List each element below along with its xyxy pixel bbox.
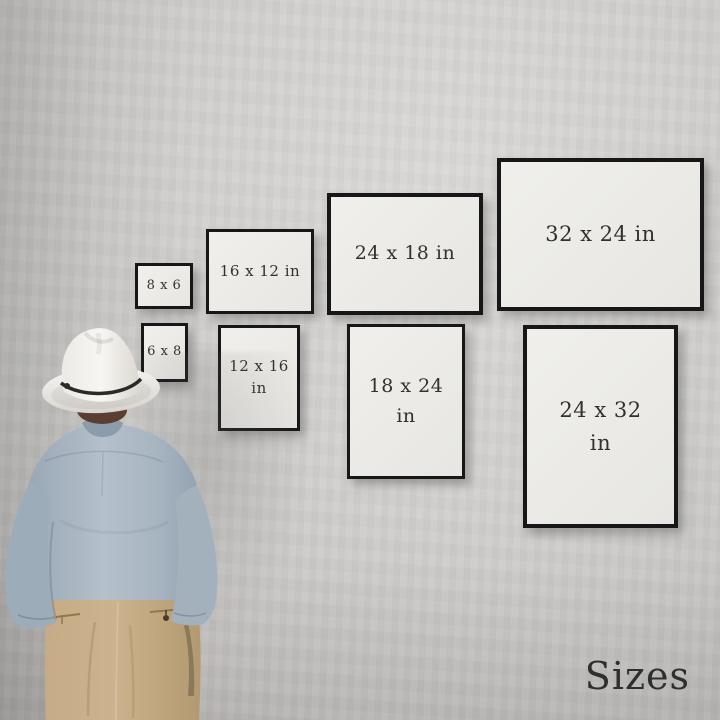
caption-sizes: Sizes: [585, 654, 690, 698]
frame-8x6: 8 x 6: [135, 263, 193, 309]
frame-size-label: 18 x 24: [369, 372, 444, 401]
frame-24x18: 24 x 18 in: [327, 193, 483, 315]
gallery-wall-scene: 8 x 6 16 x 12 in 24 x 18 in 32 x 24 in 6…: [0, 0, 720, 720]
frame-24x32: 24 x 32 in: [523, 325, 678, 528]
frame-size-label: 32 x 24 in: [545, 219, 656, 249]
frame-size-label: 16 x 12 in: [220, 261, 300, 283]
frame-18x24: 18 x 24 in: [347, 324, 465, 479]
frame-size-label: 8 x 6: [147, 277, 182, 296]
frame-size-label: 24 x 18 in: [355, 240, 456, 268]
man-figure: [0, 320, 232, 720]
frame-unit-label: in: [251, 378, 266, 400]
frame-size-label: 12 x 16: [229, 356, 289, 378]
frame-unit-label: in: [590, 427, 611, 460]
hat: [41, 328, 161, 416]
frame-size-label: 24 x 32: [559, 394, 641, 427]
frame-32x24: 32 x 24 in: [497, 158, 704, 311]
frame-unit-label: in: [396, 402, 415, 431]
frame-16x12: 16 x 12 in: [206, 229, 314, 314]
